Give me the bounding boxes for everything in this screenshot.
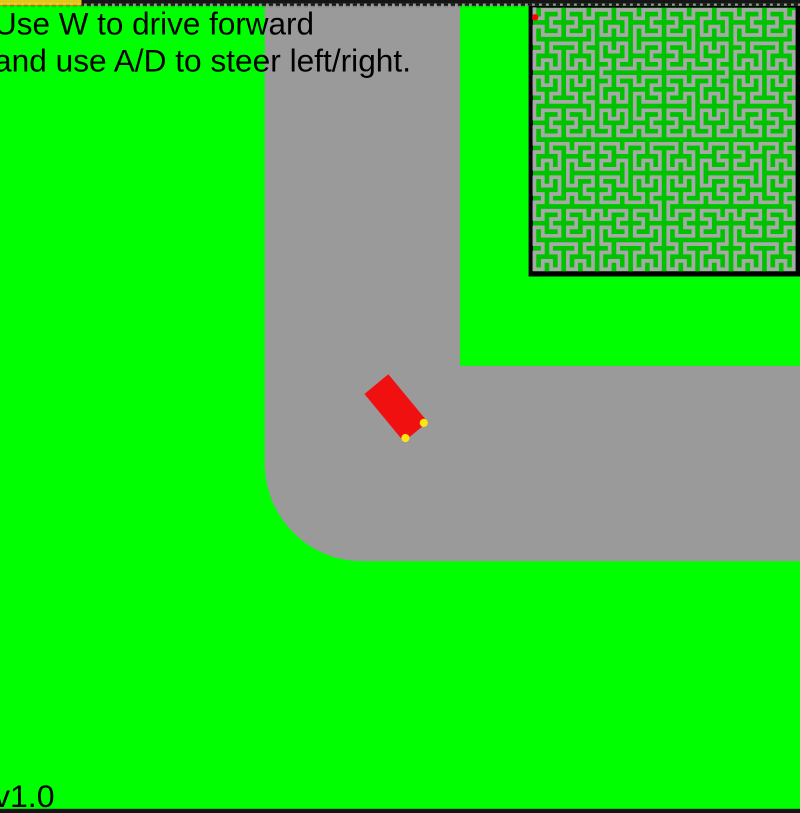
svg-text:v1.0: v1.0 (0, 778, 55, 813)
svg-text:Use W to drive forward: Use W to drive forward (0, 6, 314, 42)
svg-text:and use A/D to steer left/righ: and use A/D to steer left/right. (0, 43, 411, 79)
